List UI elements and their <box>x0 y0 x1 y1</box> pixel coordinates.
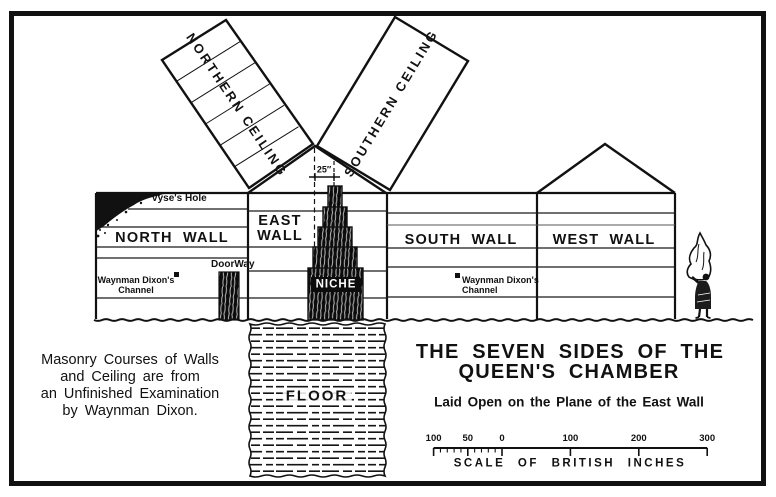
figure-feet <box>696 317 711 318</box>
torch-flame <box>687 233 710 280</box>
diagram-artwork <box>0 0 776 497</box>
masonry-note: Masonry Courses of Wallsand Ceiling are … <box>41 352 220 420</box>
masonry-note-line3: an Unfinished Examination <box>41 386 220 403</box>
niche-offset-label: 25″ <box>316 166 332 175</box>
figure-robe <box>695 281 711 309</box>
south-channel-line1: Waynman Dixon's <box>462 275 539 285</box>
masonry-note-line4: by Waynman Dixon. <box>41 403 220 420</box>
scale-bar-caption: SCALE OF BRITISH INCHES <box>454 458 686 470</box>
ground-line <box>94 319 753 321</box>
doorway-opening <box>219 272 239 320</box>
diagram-title-line1: THE SEVEN SIDES OF THE <box>416 342 724 362</box>
figure-head <box>703 274 710 281</box>
north-channel-marker <box>174 272 179 277</box>
niche-structure <box>308 186 363 320</box>
east-wall-label-line1: EAST <box>257 214 303 229</box>
vyses-hole-label: Vyse's Hole <box>151 194 206 204</box>
south-channel-label: Waynman Dixon'sChannel <box>462 275 539 296</box>
north-channel-line2: Channel <box>98 285 175 295</box>
east-wall-label-line2: WALL <box>257 229 303 244</box>
masonry-note-line2: and Ceiling are from <box>41 369 220 386</box>
course-lines <box>96 209 675 298</box>
north-channel-line1: Waynman Dixon's <box>98 275 175 285</box>
scale-bar <box>434 448 708 456</box>
niche-label: NICHE <box>316 279 357 291</box>
south-channel-marker <box>455 273 460 278</box>
north-wall-label: NORTH WALL <box>115 231 229 246</box>
figure-legs <box>699 309 707 317</box>
east-wall-label: EASTWALL <box>257 214 303 244</box>
south-channel-line2: Channel <box>462 285 539 295</box>
floor-label: FLOOR <box>283 389 352 404</box>
diagram-subtitle: Laid Open on the Plane of the East Wall <box>434 395 704 409</box>
doorway-label: DoorWay <box>211 260 255 270</box>
masonry-note-line1: Masonry Courses of Walls <box>41 352 220 369</box>
torch-bearer-figure <box>687 233 711 318</box>
south-wall-label: SOUTH WALL <box>405 233 518 248</box>
west-wall-label: WEST WALL <box>553 233 656 248</box>
north-channel-label: Waynman Dixon'sChannel <box>98 275 175 296</box>
wall-band <box>96 193 675 319</box>
diagram-page: NORTHERN CEILING SOUTHERN CEILING NORTH … <box>0 0 776 497</box>
west-wall-gable <box>537 144 675 193</box>
diagram-title-line2: QUEEN'S CHAMBER <box>459 362 680 382</box>
